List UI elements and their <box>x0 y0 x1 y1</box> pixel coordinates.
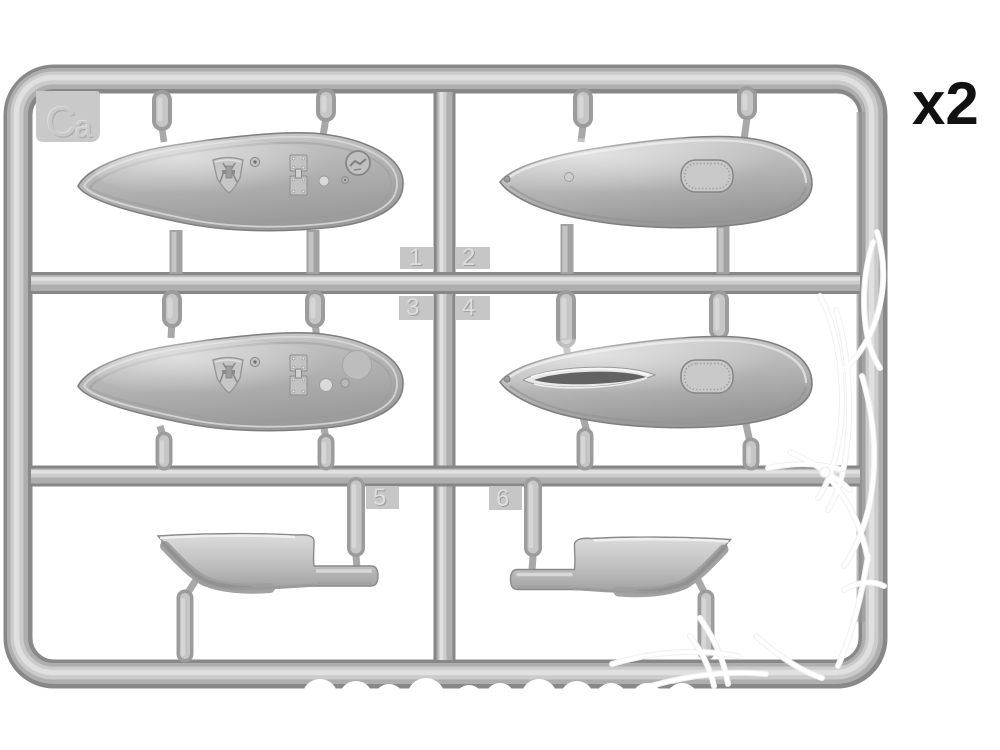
svg-text:5: 5 <box>373 484 386 511</box>
svg-text:4: 4 <box>462 294 475 321</box>
svg-text:x2: x2 <box>912 70 979 137</box>
svg-text:1: 1 <box>409 244 422 271</box>
svg-text:a: a <box>75 109 93 144</box>
svg-text:2: 2 <box>462 244 475 271</box>
svg-text:6: 6 <box>496 485 509 512</box>
svg-text:3: 3 <box>406 294 419 321</box>
svg-text:C: C <box>46 98 76 145</box>
